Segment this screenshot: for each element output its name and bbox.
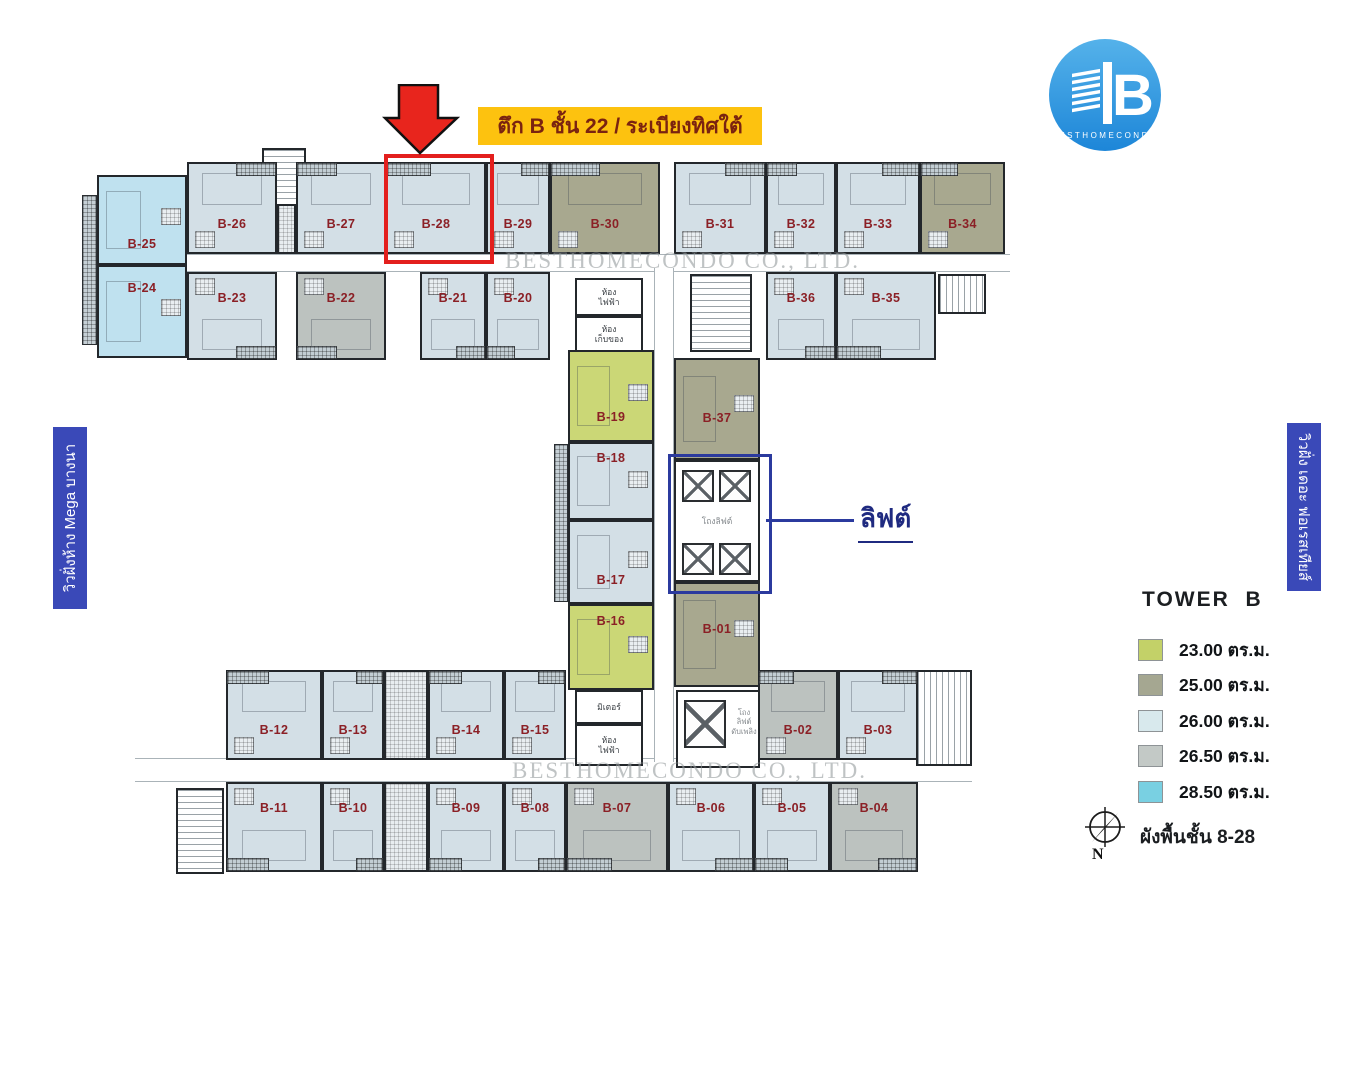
balcony-hatch	[882, 671, 917, 684]
unit-B-29: B-29	[486, 162, 550, 254]
legend-area-label: 23.00 ตร.ม.	[1179, 636, 1270, 664]
compass-north-label: N	[1092, 846, 1104, 864]
balcony-hatch	[567, 858, 612, 871]
unit-label: B-20	[488, 291, 548, 305]
unit-label: B-05	[756, 801, 828, 815]
unit-B-35: B-35	[836, 272, 936, 360]
room-label-text: ห้อง ไฟฟ้า	[598, 735, 619, 755]
unit-B-25: B-25	[97, 175, 187, 265]
unit-B-07: B-07	[566, 782, 668, 872]
legend-item: 26.00 ตร.ม.	[1138, 703, 1270, 739]
balcony-hatch	[356, 858, 383, 871]
unit-B-08: B-08	[504, 782, 566, 872]
unit-B-20: B-20	[486, 272, 550, 360]
unit-B-30: B-30	[550, 162, 660, 254]
balcony-hatch	[429, 671, 462, 684]
stairwell	[916, 670, 972, 766]
elevator-shaft-icon	[684, 700, 726, 748]
unit-label: B-18	[570, 451, 652, 465]
legend-item: 25.00 ตร.ม.	[1138, 668, 1270, 704]
unit-label: B-15	[506, 723, 564, 737]
logo-caption: BESTHOMECONDO	[1051, 131, 1158, 140]
highlighted-unit-b28-box	[384, 154, 494, 264]
compass-icon: N	[1082, 806, 1128, 868]
unit-label: B-34	[922, 217, 1003, 231]
balcony-hatch	[725, 163, 765, 176]
unit-label: B-04	[832, 801, 916, 815]
unit-B-27: B-27	[296, 162, 386, 254]
unit-label: B-12	[228, 723, 320, 737]
unit-label: B-17	[570, 573, 652, 587]
unit-B-18: B-18	[568, 442, 654, 520]
legend-swatch	[1138, 745, 1163, 767]
legend-items: 23.00 ตร.ม.25.00 ตร.ม.26.00 ตร.ม.26.50 ต…	[1138, 632, 1270, 810]
balcony-hatch	[356, 671, 383, 684]
unit-label: B-13	[324, 723, 382, 737]
legend-area-label: 26.50 ตร.ม.	[1179, 742, 1270, 770]
unit-B-10: B-10	[322, 782, 384, 872]
floorplan-screenshot: ห้อง ไฟฟ้าห้อง เก็บของโถงลิฟต์มิเตอร์ห้อ…	[0, 0, 1363, 1080]
unit-label: B-06	[670, 801, 752, 815]
legend-item: 23.00 ตร.ม.	[1138, 632, 1270, 668]
unit-B-34: B-34	[920, 162, 1005, 254]
unit-label: B-19	[570, 410, 652, 424]
unit-label: B-21	[422, 291, 484, 305]
unit-label: B-31	[676, 217, 764, 231]
title-banner: ตึก B ชั้น 22 / ระเบียงทิศใต้	[478, 107, 762, 145]
legend-item: 28.50 ตร.ม.	[1138, 774, 1270, 810]
legend-area-label: 28.50 ตร.ม.	[1179, 778, 1270, 806]
unit-B-17: B-17	[568, 520, 654, 604]
watermark-top: BESTHOMECONDO CO., LTD.	[505, 248, 860, 274]
room-label-text: โถง ลิฟต์ ดับเพลิง	[731, 708, 756, 736]
unit-label: B-30	[552, 217, 658, 231]
utility-room: ห้อง เก็บของ	[575, 316, 643, 352]
unit-B-37: B-37	[674, 358, 760, 460]
balcony-hatch	[227, 671, 269, 684]
unit-B-22: B-22	[296, 272, 386, 360]
unit-label: B-07	[568, 801, 666, 815]
stairwell	[690, 274, 752, 352]
besthomecondo-logo: B BESTHOMECONDO	[1048, 38, 1162, 152]
unit-B-31: B-31	[674, 162, 766, 254]
unit-B-11: B-11	[226, 782, 322, 872]
unit-label: B-16	[570, 614, 652, 628]
unit-label: B-25	[99, 237, 185, 251]
balcony-hatch	[297, 163, 337, 176]
unit-label: B-36	[768, 291, 834, 305]
unit-label: B-03	[840, 723, 916, 737]
balcony-hatch	[429, 858, 462, 871]
right-view-banner: วิวฝั่ง เดอะ ฟอเรสเทียส์	[1287, 423, 1321, 591]
balcony-hatch	[521, 163, 549, 176]
legend-area-label: 25.00 ตร.ม.	[1179, 671, 1270, 699]
unit-label: B-27	[298, 217, 384, 231]
elevator-callout-line	[766, 519, 854, 522]
logo-letter: B	[1112, 63, 1154, 128]
elevator-highlight-box	[668, 454, 772, 594]
unit-B-33: B-33	[836, 162, 920, 254]
unit-B-14: B-14	[428, 670, 504, 760]
unit-label: B-10	[324, 801, 382, 815]
balcony-hatch	[755, 858, 788, 871]
unit-label: B-26	[189, 217, 275, 231]
unit-B-16: B-16	[568, 604, 654, 690]
unit-B-15: B-15	[504, 670, 566, 760]
unit-label: B-37	[676, 411, 758, 425]
unit-B-09: B-09	[428, 782, 504, 872]
unit-label: B-32	[768, 217, 834, 231]
unit-B-32: B-32	[766, 162, 836, 254]
unit-B-05: B-05	[754, 782, 830, 872]
left-view-banner: วิวฝั่งห้าง Mega บางนา	[53, 427, 87, 609]
legend-title: TOWER B	[1142, 588, 1263, 612]
unit-label: B-35	[838, 291, 934, 305]
unit-B-12: B-12	[226, 670, 322, 760]
unit-label: B-11	[228, 801, 320, 815]
watermark-bottom: BESTHOMECONDO CO., LTD.	[512, 758, 867, 784]
balcony-hatch	[882, 163, 919, 176]
balcony-hatch-strip	[554, 444, 568, 602]
unit-B-21: B-21	[420, 272, 486, 360]
unit-label: B-24	[99, 281, 185, 295]
red-arrow-marker	[382, 84, 460, 156]
balcony-hatch	[538, 858, 565, 871]
balcony-hatch	[297, 346, 337, 359]
unit-label: B-08	[506, 801, 564, 815]
unit-label: B-29	[488, 217, 548, 231]
room-label-text: ห้อง เก็บของ	[595, 324, 624, 344]
unit-B-24: B-24	[97, 265, 187, 358]
unit-label: B-02	[760, 723, 836, 737]
unit-label: B-22	[298, 291, 384, 305]
balcony-hatch-strip	[82, 195, 97, 345]
unit-B-36: B-36	[766, 272, 836, 360]
balcony-hatch	[921, 163, 958, 176]
unit-B-02: B-02	[758, 670, 838, 760]
unit-B-19: B-19	[568, 350, 654, 442]
balcony-hatch	[456, 346, 485, 359]
balcony-hatch	[551, 163, 600, 176]
unit-label: B-01	[676, 622, 758, 636]
balcony-hatch	[715, 858, 753, 871]
balcony-hatch	[837, 346, 881, 359]
unit-label: B-14	[430, 723, 502, 737]
legend-swatch	[1138, 639, 1163, 661]
unit-B-26: B-26	[187, 162, 277, 254]
unit-label: B-33	[838, 217, 918, 231]
balcony-hatch	[487, 346, 515, 359]
balcony-hatch	[538, 671, 565, 684]
bathroom-block	[384, 670, 428, 760]
legend-swatch	[1138, 781, 1163, 803]
balcony-hatch	[878, 858, 917, 871]
utility-room: ห้อง ไฟฟ้า	[575, 278, 643, 316]
bathroom-block	[384, 782, 428, 872]
utility-room: มิเตอร์	[575, 690, 643, 724]
unit-B-04: B-04	[830, 782, 918, 872]
legend-item: 26.50 ตร.ม.	[1138, 739, 1270, 775]
balcony-hatch	[759, 671, 794, 684]
unit-B-06: B-06	[668, 782, 754, 872]
legend-swatch	[1138, 674, 1163, 696]
unit-B-23: B-23	[187, 272, 277, 360]
floor-range-note: ผังพื้นชั้น 8-28	[1140, 822, 1255, 852]
balcony-hatch	[767, 163, 797, 176]
elevator-callout-label: ลิฟต์	[858, 498, 913, 543]
balcony-hatch	[805, 346, 835, 359]
unit-label: B-23	[189, 291, 275, 305]
legend-swatch	[1138, 710, 1163, 732]
room-label: โถง ลิฟต์ ดับเพลิง	[726, 692, 762, 752]
room-label-text: มิเตอร์	[597, 702, 621, 712]
unit-label: B-09	[430, 801, 502, 815]
balcony-hatch	[236, 163, 276, 176]
stairwell	[938, 274, 986, 314]
unit-B-03: B-03	[838, 670, 918, 760]
stairwell	[176, 788, 224, 874]
legend-area-label: 26.00 ตร.ม.	[1179, 707, 1270, 735]
unit-B-01: B-01	[674, 582, 760, 687]
unit-B-13: B-13	[322, 670, 384, 760]
balcony-hatch	[227, 858, 269, 871]
room-label-text: ห้อง ไฟฟ้า	[598, 287, 619, 307]
balcony-hatch	[236, 346, 276, 359]
